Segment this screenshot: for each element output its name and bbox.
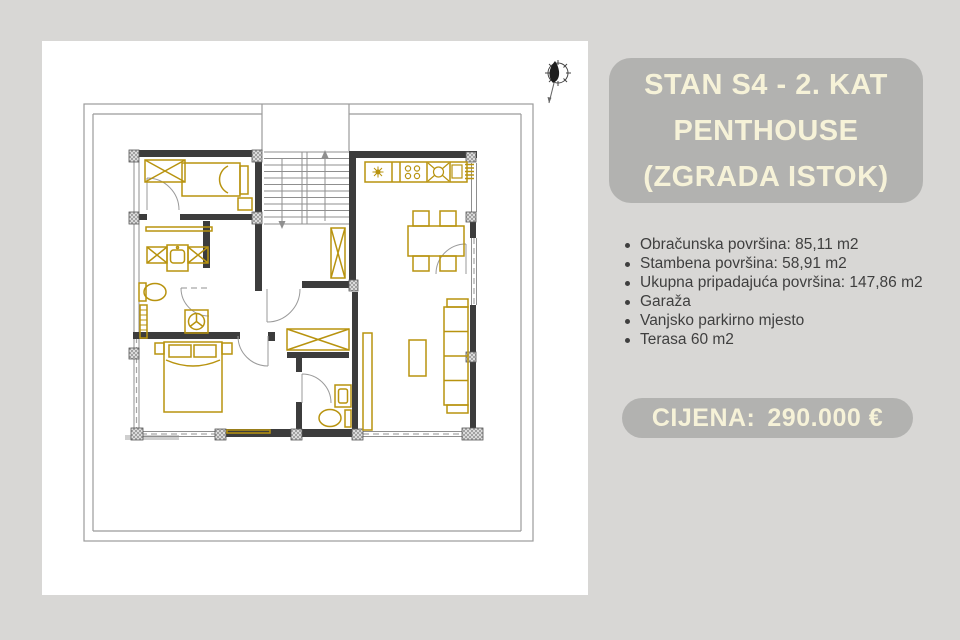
sofa bbox=[444, 299, 468, 413]
title-line-2: PENTHOUSE bbox=[674, 108, 859, 154]
stairs bbox=[264, 152, 349, 224]
price-card: CIJENA: 290.000 € bbox=[622, 398, 913, 438]
title-card: STAN S4 - 2. KAT PENTHOUSE (ZGRADA ISTOK… bbox=[609, 58, 923, 203]
detail-list: Obračunska površina: 85,11 m2 Stambena p… bbox=[622, 238, 937, 352]
washing-machine-icon bbox=[185, 310, 208, 333]
tv-cabinet bbox=[363, 333, 372, 430]
walls bbox=[133, 150, 477, 440]
detail-item: Stambena površina: 58,91 m2 bbox=[622, 257, 937, 271]
stairs-up-arrow bbox=[322, 150, 329, 158]
title-line-3: (ZGRADA ISTOK) bbox=[643, 154, 888, 200]
closet-x bbox=[287, 329, 349, 350]
stove-icon bbox=[405, 166, 419, 179]
single-bed bbox=[182, 163, 252, 210]
title-line-1: STAN S4 - 2. KAT bbox=[644, 62, 888, 108]
fridge-icon bbox=[452, 165, 474, 179]
detail-item: Garaža bbox=[622, 295, 937, 309]
windows-glass-walls bbox=[134, 162, 477, 437]
detail-item: Ukupna pripadajuća površina: 147,86 m2 bbox=[622, 276, 937, 290]
listing-flyer: { "page": { "background_color": "#d8d7d5… bbox=[0, 0, 960, 640]
sink-icon bbox=[428, 163, 449, 181]
coffee-table bbox=[409, 340, 426, 376]
toilet-tank-2 bbox=[345, 410, 351, 427]
floor-plan-drawing bbox=[42, 41, 588, 595]
toilet-icon-2 bbox=[319, 410, 341, 427]
kitchen-counter bbox=[365, 162, 474, 182]
floor-plan-panel bbox=[42, 41, 588, 595]
price-value: 290.000 € bbox=[767, 404, 883, 433]
toilet-icon bbox=[144, 284, 166, 301]
detail-item: Vanjsko parkirno mjesto bbox=[622, 314, 937, 328]
stairs-down-arrow bbox=[279, 221, 286, 229]
terrace-outline bbox=[84, 104, 533, 541]
toilet-tank bbox=[139, 283, 146, 301]
bathroom-2 bbox=[319, 385, 351, 427]
landing-cabinet bbox=[331, 228, 345, 278]
wardrobe-1 bbox=[145, 160, 185, 182]
dining-table bbox=[408, 211, 464, 271]
bathroom-1 bbox=[139, 227, 212, 338]
hob-symbol bbox=[373, 167, 384, 178]
price-label: CIJENA: bbox=[652, 404, 756, 433]
detail-item: Obračunska površina: 85,11 m2 bbox=[622, 238, 937, 252]
north-arrow-icon bbox=[545, 60, 571, 103]
double-bed bbox=[155, 342, 232, 412]
detail-item: Terasa 60 m2 bbox=[622, 333, 937, 347]
